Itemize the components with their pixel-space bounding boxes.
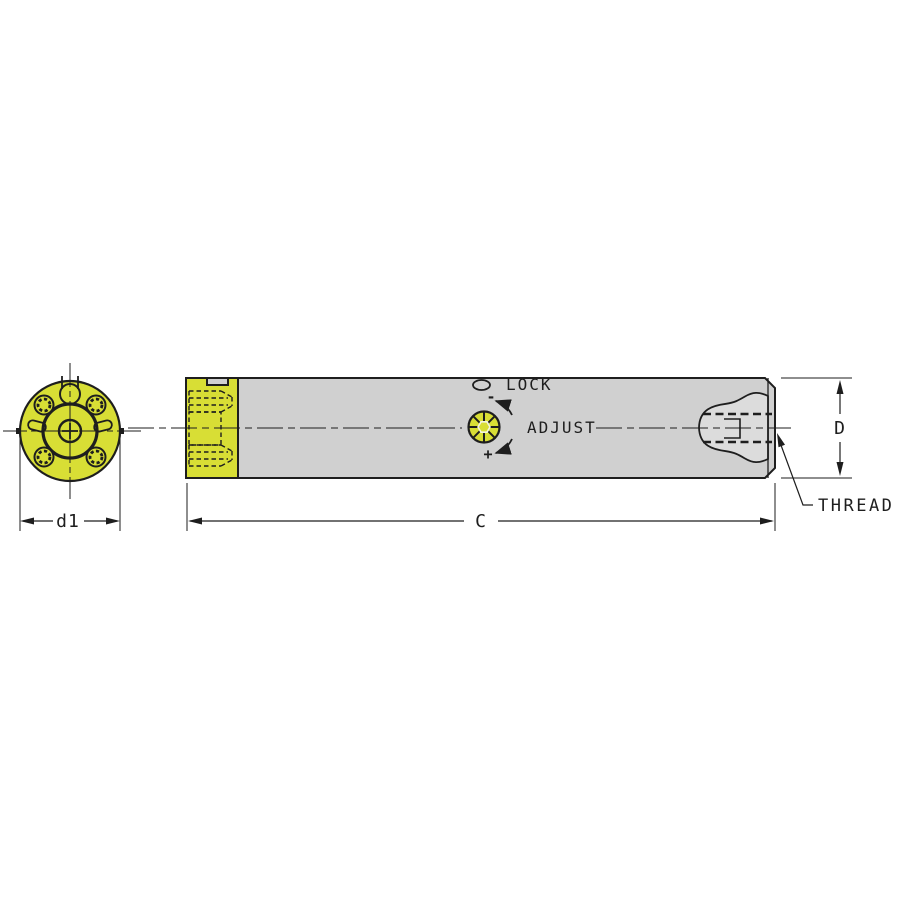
screw-hole [35,396,54,415]
dim-d1-label: d1 [56,511,80,532]
dim-d-label: D [834,418,846,439]
dim-arrow [837,380,844,394]
dim-arrow [760,518,774,525]
dim-arrow [106,518,120,525]
screw-hole [87,396,106,415]
thread-callout: THREAD [777,433,894,516]
dim-c-label: C [475,511,487,532]
engineering-drawing-page: d1 [0,0,900,900]
dim-c: C [187,483,775,532]
dim-arrow [20,518,34,525]
dim-d: D [781,378,852,478]
end-view: d1 [3,363,143,532]
dim-arrow [188,518,202,525]
adjust-dial [469,412,500,443]
adjust-label: ADJUST [527,418,597,437]
minus-sign: - [486,388,495,406]
plus-sign: + [483,445,492,463]
lock-label: LOCK [506,375,553,394]
thread-leader [778,437,813,505]
side-view: LOCK - + ADJUST [128,375,791,478]
screw-hole [87,448,106,467]
drawing-canvas: d1 [0,0,900,900]
edge-tick-left [16,428,20,434]
dim-arrow [837,462,844,476]
thread-label: THREAD [818,496,894,516]
screw-hole [35,448,54,467]
edge-tick-right [120,428,124,434]
leader-arrow [777,433,785,447]
